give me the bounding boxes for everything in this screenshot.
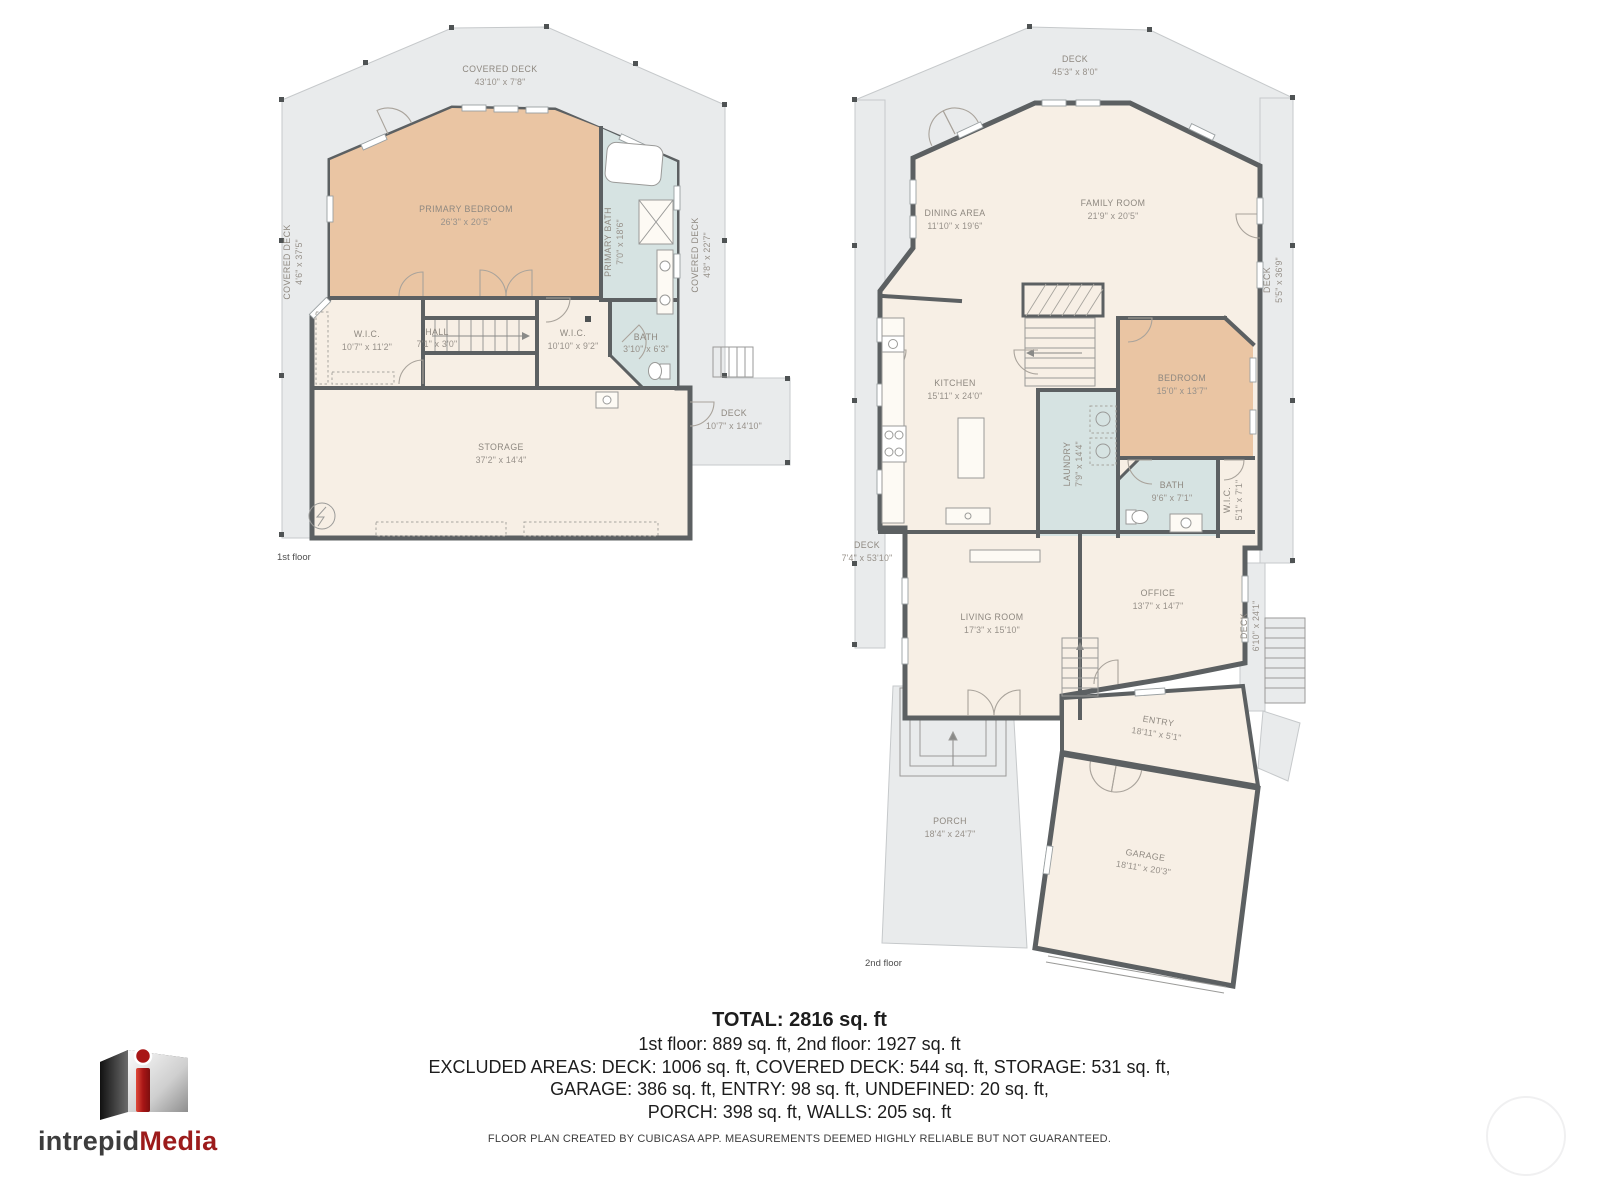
primary-bedroom-dims: 26'3" x 20'5" — [441, 217, 492, 227]
dining-label: DINING AREA — [924, 208, 985, 218]
sink-icon — [596, 392, 618, 408]
vanity-icon — [1170, 514, 1202, 532]
bedroom-label: BEDROOM — [1158, 373, 1206, 383]
laundry-label: LAUNDRY — [1062, 442, 1072, 487]
living-label: LIVING ROOM — [960, 612, 1023, 622]
wic-label: W.I.C. — [1222, 487, 1232, 513]
primary-bedroom-label: PRIMARY BEDROOM — [419, 204, 513, 214]
covered-deck-left-label: COVERED DECK — [282, 224, 292, 299]
deck-left-dims: 7'4" x 53'10" — [842, 553, 893, 563]
wic-left-dims: 10'7" x 11'2" — [342, 342, 392, 352]
office-dims: 13'7" x 14'7" — [1133, 601, 1184, 611]
first-floor-plan: COVERED DECK 43'10" x 7'8" COVERED DECK … — [270, 10, 790, 570]
kitchen-cabinet-icon — [946, 508, 990, 524]
bath-dims: 3'10" x 6'3" — [623, 344, 669, 354]
living-dims: 17'3" x 15'10" — [964, 625, 1020, 635]
logo-word-media: Media — [139, 1126, 217, 1156]
logo-wordmark: intrepidMedia — [38, 1126, 217, 1157]
dining-dims: 11'10" x 19'6" — [927, 221, 982, 231]
logo-cube-icon — [94, 1042, 204, 1126]
primary-bath-label: PRIMARY BATH — [603, 207, 613, 277]
porch-label: PORCH — [933, 816, 967, 826]
deck-right-dims: 5'5" x 36'9" — [1274, 257, 1284, 303]
laundry-dims: 7'9" x 14'4" — [1074, 441, 1084, 487]
toilet-icon — [649, 363, 671, 380]
double-vanity-icon — [657, 250, 673, 314]
kitchen-dims: 15'11" x 24'0" — [927, 391, 982, 401]
deck-top-dims: 45'3" x 8'0" — [1052, 67, 1098, 77]
deck-lower-right-label: DECK — [1239, 613, 1249, 639]
wic-dims: 5'1" x 7'1" — [1234, 480, 1244, 521]
kitchen-island-icon — [958, 418, 984, 478]
bath-label: BATH — [1160, 480, 1184, 490]
bath-dims: 9'6" x 7'1" — [1152, 493, 1193, 503]
console-icon — [970, 550, 1040, 562]
wic-right-dims: 10'10" x 9'2" — [548, 341, 599, 351]
covered-deck-top-dims: 43'10" x 7'8" — [475, 77, 526, 87]
hall-dims: 7'1" x 3'0" — [417, 339, 458, 349]
bathtub-icon — [604, 142, 663, 187]
bedroom-dims: 15'0" x 13'7" — [1157, 386, 1208, 396]
covered-deck-left-dims: 4'6" x 37'5" — [294, 239, 304, 285]
bath-label: BATH — [634, 332, 658, 342]
second-floor-label: 2nd floor — [865, 958, 902, 969]
wic-right-label: W.I.C. — [560, 328, 586, 338]
covered-deck-right-label: COVERED DECK — [690, 217, 700, 292]
deck-lower-right-dims: 6'10" x 24'1" — [1251, 601, 1261, 652]
deck-top-label: DECK — [1062, 54, 1088, 64]
floor-plan-page: COVERED DECK 43'10" x 7'8" COVERED DECK … — [0, 0, 1599, 1199]
kitchen-sink-icon — [882, 336, 904, 352]
shower-icon — [639, 200, 673, 244]
hall-label: HALL — [425, 327, 449, 337]
porch-dims: 18'4" x 24'7" — [925, 829, 976, 839]
covered-deck-top-label: COVERED DECK — [462, 64, 537, 74]
wic-left-label: W.I.C. — [354, 329, 380, 339]
primary-bath-dims: 7'0" x 18'6" — [615, 219, 625, 265]
logo-word-intrepid: intrepid — [38, 1126, 139, 1156]
deck-left-label: DECK — [854, 540, 880, 550]
kitchen-label: KITCHEN — [934, 378, 975, 388]
office-label: OFFICE — [1141, 588, 1176, 598]
storage-label: STORAGE — [478, 442, 524, 452]
covered-deck-right-dims: 4'8" x 22'7" — [702, 232, 712, 278]
intrepid-media-logo: intrepidMedia — [38, 1042, 258, 1154]
second-floor-plan: DECK 45'3" x 8'0" DINING AREA 11'10" x 1… — [820, 18, 1320, 998]
watermark-circle — [1486, 1096, 1566, 1176]
deck-right-label: DECK — [1262, 267, 1272, 293]
family-label: FAMILY ROOM — [1081, 198, 1146, 208]
deck-right-dims: 10'7" x 14'10" — [706, 421, 762, 431]
storage-dims: 37'2" x 14'4" — [476, 455, 527, 465]
stove-icon — [882, 426, 906, 462]
toilet-icon — [1126, 510, 1148, 524]
total-area-text: TOTAL: 2816 sq. ft — [0, 1007, 1599, 1033]
deck-right-label: DECK — [721, 408, 747, 418]
first-floor-label: 1st floor — [277, 552, 311, 563]
family-dims: 21'9" x 20'5" — [1088, 211, 1139, 221]
